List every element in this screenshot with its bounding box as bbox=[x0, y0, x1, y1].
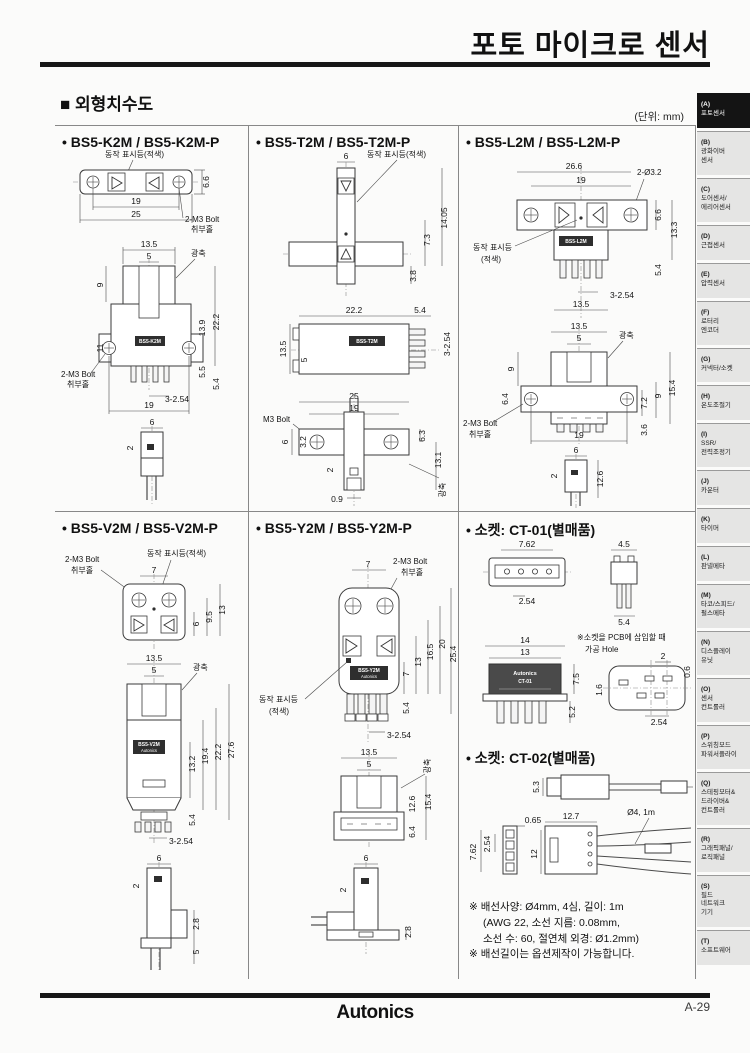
dim-label: 2 bbox=[661, 651, 666, 661]
dim-label: 13.5 bbox=[141, 239, 158, 249]
dim-label: 26.6 bbox=[566, 161, 583, 171]
dimension-drawings-grid: • BS5-K2M / BS5-K2M-P 동작 표시등(적색) 6.6 19 … bbox=[55, 125, 696, 979]
footer-rule bbox=[40, 993, 710, 998]
annotation-label: 취부홀 bbox=[401, 567, 423, 577]
tab-key: (L) bbox=[701, 554, 747, 563]
annotation-label: 2-M3 Bolt bbox=[61, 370, 96, 379]
dim-label: 5.5 bbox=[197, 366, 207, 378]
page-number: A-29 bbox=[685, 1000, 710, 1014]
dim-label: 6 bbox=[150, 417, 155, 427]
dim-label: 13 bbox=[413, 657, 423, 667]
brand-label: Autonics bbox=[361, 674, 377, 679]
panel-title: • BS5-K2M / BS5-K2M-P bbox=[62, 134, 219, 150]
dim-label: 1.6 bbox=[594, 684, 604, 696]
tab-label: 센서 컨트롤러 bbox=[701, 695, 747, 713]
dim-label: 19 bbox=[131, 196, 141, 206]
annotation-label: 광축 bbox=[422, 759, 432, 774]
sidebar-item-software[interactable]: (T) 소프트웨어 bbox=[697, 930, 750, 965]
annotation-label: 광축 bbox=[437, 483, 447, 498]
panel-title: • BS5-V2M / BS5-V2M-P bbox=[62, 520, 218, 536]
dim-label: 7 bbox=[152, 565, 157, 575]
category-sidebar: (A) 포토센서 (B) 광화이버 센서 (C) 도어센서/ 에리어센서 (D)… bbox=[697, 93, 750, 968]
dim-label: 22.2 bbox=[346, 305, 363, 315]
ct01-pcb-hole-drawing: ※소켓을 PCB에 삽입할 때 가공 Hole 2 0.6 1.6 2.54 bbox=[577, 632, 692, 727]
tab-label: 그래픽패널/ 로직패널 bbox=[701, 845, 747, 863]
panel-title: • BS5-T2M / BS5-T2M-P bbox=[256, 134, 410, 150]
dim-label: 2 bbox=[338, 887, 348, 892]
dim-label: 12 bbox=[529, 849, 539, 859]
tab-key: (D) bbox=[701, 233, 747, 242]
dim-label: 25 bbox=[131, 209, 141, 219]
annotation-label: 2-Ø3.2 bbox=[637, 168, 662, 177]
brand-label: Autonics bbox=[513, 671, 537, 677]
dim-label: 4.5 bbox=[618, 539, 630, 549]
dim-label: 2.54 bbox=[482, 835, 492, 852]
annotation-label: 동작 표시등 bbox=[259, 694, 298, 704]
sidebar-item-smps[interactable]: (P) 스위칭모드 파워서플라이 bbox=[697, 725, 750, 769]
sidebar-item-door-area-sensor[interactable]: (C) 도어센서/ 에리어센서 bbox=[697, 178, 750, 222]
dim-label: 22.2 bbox=[211, 313, 221, 330]
tab-key: (F) bbox=[701, 309, 747, 318]
dim-label: 2 bbox=[549, 473, 559, 478]
dim-label: 13.5 bbox=[573, 299, 590, 309]
v2m-side-view-drawing: 6 0.9 2 2.8 5 bbox=[131, 853, 201, 970]
annotation-label: 동작 표시등(적색) bbox=[105, 149, 164, 159]
annotation-label: 가공 Hole bbox=[585, 645, 619, 654]
dim-label: 14.05 bbox=[439, 207, 449, 229]
annotation-label: 2-M3 Bolt bbox=[393, 557, 428, 566]
dim-label: 5.4 bbox=[414, 305, 426, 315]
dim-label: 9 bbox=[95, 282, 105, 287]
unit-note: (단위: mm) bbox=[634, 109, 684, 124]
annotation-label: M3 Bolt bbox=[263, 415, 291, 424]
tab-label: 광화이버 센서 bbox=[701, 148, 747, 166]
dim-label: Ø4, 1m bbox=[627, 807, 655, 817]
tab-key: (P) bbox=[701, 733, 747, 742]
panel-bs5-l2m: • BS5-L2M / BS5-L2M-P 26.6 2-Ø3.2 19 BS5… bbox=[459, 126, 695, 511]
v2m-top-view-drawing: 2-M3 Bolt 취부홀 동작 표시등(적색) 7 6 9.5 13 bbox=[65, 548, 227, 650]
tab-label: 근접센서 bbox=[701, 242, 747, 251]
t2m-side-view-drawing: 22.2 5.4 3-2.54 BS5-T2M 13.5 5 bbox=[278, 305, 452, 374]
k2m-side-view-drawing: 6 0.9 2 bbox=[125, 417, 163, 504]
annotation-label: 취부홀 bbox=[71, 565, 93, 575]
sidebar-item-proximity-sensor[interactable]: (D) 근접센서 bbox=[697, 225, 750, 260]
tab-key: (I) bbox=[701, 431, 747, 440]
dim-label: 3.2 bbox=[298, 436, 308, 448]
tab-label: 스테핑모터& 드라이버& 컨트롤러 bbox=[701, 789, 747, 816]
tab-label: 온도조절기 bbox=[701, 402, 747, 411]
dim-label: 3-2.54 bbox=[169, 836, 193, 846]
tab-label: 스위칭모드 파워서플라이 bbox=[701, 742, 747, 760]
annotation-label: 2-M3 Bolt bbox=[185, 215, 220, 224]
sidebar-item-temp-controller[interactable]: (H) 온도조절기 bbox=[697, 385, 750, 420]
dim-label: 12.6 bbox=[595, 470, 605, 487]
panel-sockets: • 소켓: CT-01(별매품) • 소켓: CT-02(별매품) 7.62 2… bbox=[459, 512, 695, 979]
tab-label: 도어센서/ 에리어센서 bbox=[701, 195, 747, 213]
dim-label: 5 bbox=[299, 357, 309, 362]
tab-label: 타이머 bbox=[701, 525, 747, 534]
tab-key: (O) bbox=[701, 686, 747, 695]
dim-label: 6.4 bbox=[407, 826, 417, 838]
dim-label: 3-2.54 bbox=[387, 730, 411, 740]
model-label: BS5-T2M bbox=[356, 339, 377, 345]
note-line: 소선 수: 60, 절연체 외경: Ø1.2mm) bbox=[469, 932, 691, 948]
dim-label: 7.62 bbox=[468, 843, 478, 860]
sidebar-item-fiber-sensor[interactable]: (B) 광화이버 센서 bbox=[697, 131, 750, 175]
y2m-side-view-drawing: 6 0.9 2 2.8 bbox=[311, 853, 413, 954]
dim-label: 6 bbox=[344, 151, 349, 161]
model-label: BS5-K2M bbox=[139, 339, 161, 345]
dim-label: 13 bbox=[217, 605, 227, 615]
dim-label: 5.4 bbox=[211, 378, 221, 390]
tab-key: (E) bbox=[701, 271, 747, 280]
annotation-label: 동작 표시등(적색) bbox=[147, 548, 206, 558]
l2m-top-view-drawing: 26.6 2-Ø3.2 19 BS5-L2M 동작 표시등 (적색) bbox=[473, 161, 679, 318]
section-title: ■ 외형치수도 bbox=[60, 90, 153, 115]
annotation-label: 광축 bbox=[191, 248, 206, 258]
dim-label: 2.54 bbox=[651, 717, 668, 727]
dim-label: 20 bbox=[437, 639, 447, 649]
dim-label: 7 bbox=[401, 671, 411, 676]
tab-key: (G) bbox=[701, 356, 747, 365]
panel-bs5-t2m: • BS5-T2M / BS5-T2M-P 6 동작 표시등(적색) 14.05… bbox=[249, 126, 458, 511]
dim-label: 2.54 bbox=[519, 596, 536, 606]
tab-key: (K) bbox=[701, 516, 747, 525]
header-rule bbox=[40, 62, 710, 67]
dim-label: 13.2 bbox=[187, 755, 197, 772]
page-title: 포토 마이크로 센서 bbox=[470, 22, 710, 64]
dim-label: 5.3 bbox=[531, 781, 541, 793]
dim-label: 7.5 bbox=[571, 673, 581, 685]
dim-label: 13.1 bbox=[433, 451, 443, 468]
tab-key: (S) bbox=[701, 883, 747, 892]
tab-label: 포토센서 bbox=[701, 110, 747, 119]
dim-label: 9 bbox=[653, 393, 663, 398]
sidebar-item-connector-socket[interactable]: (G) 커넥터/소켓 bbox=[697, 348, 750, 383]
t2m-top-view-drawing: 6 동작 표시등(적색) 14.05 7.3 3.8 bbox=[283, 149, 449, 296]
annotation-label: 2-M3 Bolt bbox=[65, 555, 100, 564]
dim-label: 0.9 bbox=[331, 494, 343, 504]
annotation-label: 광축 bbox=[619, 330, 634, 340]
note-line: (AWG 22, 소선 지름: 0.08mm, bbox=[469, 916, 691, 932]
tab-key: (A) bbox=[701, 101, 747, 110]
dim-label: 9 bbox=[506, 366, 516, 371]
dim-label: 6 bbox=[574, 445, 579, 455]
sidebar-item-rotary-encoder[interactable]: (F) 로터리 엔코더 bbox=[697, 301, 750, 345]
dim-label: 5 bbox=[191, 949, 201, 954]
dim-label: 3.6 bbox=[639, 424, 649, 436]
ct01-top-view-drawing: 7.62 2.54 bbox=[483, 539, 571, 606]
dim-label: 5.4 bbox=[187, 814, 197, 826]
dim-label: 2 bbox=[131, 883, 141, 888]
panel-title: • BS5-Y2M / BS5-Y2M-P bbox=[256, 520, 412, 536]
dim-label: 6.6 bbox=[653, 209, 663, 221]
wiring-notes: ※ 배선사양: Ø4mm, 4심, 길이: 1m (AWG 22, 소선 지름:… bbox=[469, 900, 691, 963]
annotation-label: (적색) bbox=[269, 706, 289, 716]
dim-label: 14 bbox=[520, 635, 530, 645]
dim-label: 15.4 bbox=[423, 793, 433, 810]
l2m-front-view-drawing: 13.5 5 광축 9 6.4 7.2 9 bbox=[463, 321, 677, 446]
note-line: ※ 배선사양: Ø4mm, 4심, 길이: 1m bbox=[469, 900, 691, 916]
annotation-label: 동작 표시등 bbox=[473, 242, 512, 252]
dim-label: 9.5 bbox=[204, 611, 214, 623]
panel-bs5-v2m: • BS5-V2M / BS5-V2M-P 2-M3 Bolt 취부홀 동작 표… bbox=[55, 512, 248, 979]
dim-label: 5.4 bbox=[653, 264, 663, 276]
tab-label: 디스플레이 유닛 bbox=[701, 648, 747, 666]
dim-label: 5.2 bbox=[567, 706, 577, 718]
dim-label: 2 bbox=[125, 445, 135, 450]
dim-label: 2.8 bbox=[403, 926, 413, 938]
tab-label: 로터리 엔코더 bbox=[701, 318, 747, 336]
dim-label: 5.4 bbox=[401, 702, 411, 714]
annotation-label: 취부홀 bbox=[191, 224, 213, 234]
dim-label: 13.3 bbox=[669, 221, 679, 238]
dim-label: 19 bbox=[574, 430, 584, 440]
dim-label: 6 bbox=[364, 853, 369, 863]
panel-title: • BS5-L2M / BS5-L2M-P bbox=[466, 134, 620, 150]
dim-label: 22.2 bbox=[213, 743, 223, 760]
dim-label: 0.65 bbox=[525, 815, 542, 825]
panel-title-ct02: • 소켓: CT-02(별매품) bbox=[466, 748, 595, 768]
ct01-side-view-drawing: 4.5 5.4 bbox=[611, 539, 637, 627]
brand-label: Autonics bbox=[141, 748, 157, 753]
dim-label: 7.2 bbox=[639, 397, 649, 409]
dim-label: 25.4 bbox=[448, 645, 458, 662]
dim-label: 3-2.54 bbox=[610, 290, 634, 300]
tab-key: (J) bbox=[701, 478, 747, 487]
dim-label: 7.3 bbox=[422, 234, 432, 246]
ct02-front-view-drawing: 2.54 7.62 0.65 12.7 12 Ø4, 1m bbox=[468, 807, 691, 874]
dim-label: 3.8 bbox=[408, 270, 418, 282]
sidebar-item-panel-meter[interactable]: (L) 판넬메타 bbox=[697, 546, 750, 581]
y2m-front-view-drawing: 7 2-M3 Bolt 취부홀 BS5-Y2M Autonics 동작 표시등 … bbox=[259, 557, 458, 742]
dim-label: 13.9 bbox=[197, 319, 207, 336]
k2m-top-view-drawing: 동작 표시등(적색) 6.6 19 25 2-M3 Bolt 취부홀 bbox=[73, 149, 220, 234]
sidebar-item-sensor-controller[interactable]: (O) 센서 컨트롤러 bbox=[697, 678, 750, 722]
tab-key: (Q) bbox=[701, 780, 747, 789]
dim-label: 2.8 bbox=[191, 918, 201, 930]
tab-key: (N) bbox=[701, 639, 747, 648]
tab-label: 필드 네트워크 기기 bbox=[701, 892, 747, 919]
dim-label: 7.62 bbox=[519, 539, 536, 549]
annotation-label: 취부홀 bbox=[67, 379, 89, 389]
dim-label: 5.4 bbox=[618, 617, 630, 627]
dim-label: 19.4 bbox=[200, 747, 210, 764]
l2m-side-view-drawing: 6 0.9 2 12.6 bbox=[549, 445, 605, 508]
tab-key: (B) bbox=[701, 139, 747, 148]
annotation-label: ※소켓을 PCB에 삽입할 때 bbox=[577, 632, 666, 642]
tab-key: (M) bbox=[701, 592, 747, 601]
tab-key: (R) bbox=[701, 836, 747, 845]
dim-label: 6.3 bbox=[417, 430, 427, 442]
tab-label: 판넬메타 bbox=[701, 563, 747, 572]
tab-key: (C) bbox=[701, 186, 747, 195]
sidebar-item-fieldbus[interactable]: (S) 필드 네트워크 기기 bbox=[697, 875, 750, 928]
dim-label: 15.4 bbox=[667, 379, 677, 396]
sidebar-item-graphic-panel[interactable]: (R) 그래픽패널/ 로직패널 bbox=[697, 828, 750, 872]
ct01-front-view-drawing: 14 13 Autonics CT-01 7.5 5.2 bbox=[483, 635, 581, 723]
dim-label: 13.5 bbox=[278, 340, 288, 357]
k2m-front-view-drawing: 13.5 5 광축 BS5-K2M 9 11 13.9 22.2 bbox=[61, 239, 221, 414]
tab-label: 타코/스피드/ 펄스메타 bbox=[701, 601, 747, 619]
note-line: ※ 배선길이는 옵션제작이 가능합니다. bbox=[469, 947, 691, 963]
panel-bs5-y2m: • BS5-Y2M / BS5-Y2M-P 7 2-M3 Bolt 취부홀 BS… bbox=[249, 512, 458, 979]
dim-label: 13 bbox=[520, 647, 530, 657]
annotation-label: 동작 표시등(적색) bbox=[367, 149, 426, 159]
sidebar-item-tacho-speed-pulse-meter[interactable]: (M) 타코/스피드/ 펄스메타 bbox=[697, 584, 750, 628]
sidebar-item-counter[interactable]: (J) 카운터 bbox=[697, 470, 750, 505]
ct02-side-view-drawing: 5.3 bbox=[531, 775, 693, 799]
dim-label: 6 bbox=[157, 853, 162, 863]
dim-label: 19 bbox=[144, 400, 154, 410]
dim-label: 11 bbox=[95, 343, 105, 352]
autonics-logo: Autonics bbox=[0, 1002, 750, 1024]
y2m-mid-view-drawing: 13.5 5 광축 12.6 15.4 6.4 bbox=[334, 747, 433, 848]
annotation-label: 광축 bbox=[193, 662, 208, 672]
sidebar-item-stepping-motor[interactable]: (Q) 스테핑모터& 드라이버& 컨트롤러 bbox=[697, 772, 750, 825]
dim-label: 3-2.54 bbox=[442, 332, 452, 356]
tab-label: 카운터 bbox=[701, 487, 747, 496]
dim-label: 6.6 bbox=[201, 176, 211, 188]
annotation-label: 2-M3 Bolt bbox=[463, 419, 498, 428]
sidebar-item-photo-sensor[interactable]: (A) 포토센서 bbox=[697, 93, 750, 128]
dim-label: 3-2.54 bbox=[165, 394, 189, 404]
tab-label: SSR/ 전력조정기 bbox=[701, 440, 747, 458]
dim-label: 6 bbox=[280, 439, 290, 444]
annotation-label: 취부홀 bbox=[469, 429, 491, 439]
tab-label: 압력센서 bbox=[701, 280, 747, 289]
t2m-bottom-view-drawing: 25 19 M3 Bolt 6 3.2 6.3 13.1 bbox=[263, 391, 447, 506]
tab-label: 소프트웨어 bbox=[701, 947, 747, 956]
sidebar-item-timer[interactable]: (K) 타이머 bbox=[697, 508, 750, 543]
annotation-label: (적색) bbox=[481, 254, 501, 264]
sidebar-item-ssr-power[interactable]: (I) SSR/ 전력조정기 bbox=[697, 423, 750, 467]
sidebar-item-pressure-sensor[interactable]: (E) 압력센서 bbox=[697, 263, 750, 298]
panel-bs5-k2m: • BS5-K2M / BS5-K2M-P 동작 표시등(적색) 6.6 19 … bbox=[55, 126, 248, 511]
v2m-front-view-drawing: 13.5 5 광축 BS5-V2M Autonics 13.2 19. bbox=[127, 653, 236, 846]
dim-label: 16.5 bbox=[425, 643, 435, 660]
dim-label: 12.7 bbox=[563, 811, 580, 821]
tab-label: 커넥터/소켓 bbox=[701, 365, 747, 374]
model-label: BS5-L2M bbox=[565, 239, 586, 245]
dim-label: 0.6 bbox=[682, 666, 692, 678]
model-label: CT-01 bbox=[518, 679, 532, 685]
dim-label: 6 bbox=[191, 621, 201, 626]
dim-label: 27.6 bbox=[226, 741, 236, 758]
dim-label: 12.6 bbox=[407, 795, 417, 812]
sidebar-item-display-unit[interactable]: (N) 디스플레이 유닛 bbox=[697, 631, 750, 675]
panel-title-ct01: • 소켓: CT-01(별매품) bbox=[466, 520, 595, 540]
dim-label: 6.4 bbox=[500, 393, 510, 405]
dim-label: 2 bbox=[325, 467, 335, 472]
